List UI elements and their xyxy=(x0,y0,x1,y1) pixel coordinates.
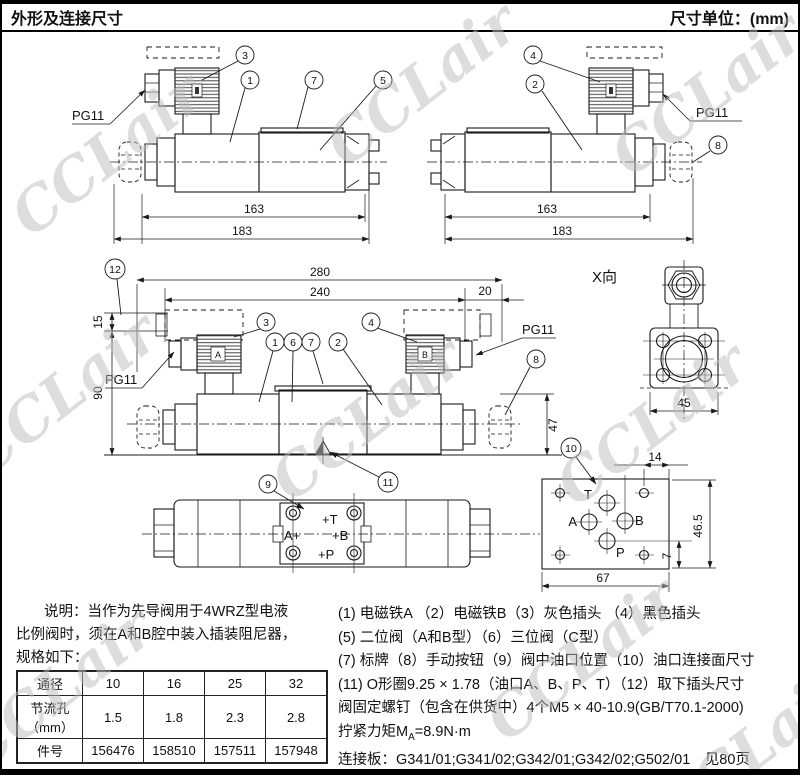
dim-45: 45 xyxy=(677,396,691,410)
legend-line: 连接板：G341/01;G341/02;G342/01;G342/02;G502… xyxy=(338,749,796,773)
table-cell: 16 xyxy=(144,671,205,696)
table-cell: 2.3 xyxy=(205,696,266,739)
pg11-label-top-left: PG11 xyxy=(72,108,104,123)
callout-4-mid: 4 xyxy=(368,317,374,329)
legend-line: (7) 标牌（8）手动按钮（9）阀中油口位置（10）油口连接面尺寸 xyxy=(338,650,796,674)
port-label-p-face: P xyxy=(616,545,625,560)
unit-label: 尺寸单位：(mm) xyxy=(670,5,789,29)
dim-240: 240 xyxy=(310,285,330,299)
dim-183-right: 183 xyxy=(552,224,572,238)
page-header: 外形及连接尺寸 尺寸单位：(mm) xyxy=(2,4,798,32)
pg11-label-mid-left: PG11 xyxy=(105,372,137,387)
drawing-assembly-view: A B xyxy=(91,259,562,464)
drawing-port-face: T A B P 14 46.5 7 67 10 xyxy=(542,438,716,592)
table-cell: 25 xyxy=(205,671,266,696)
dim-14: 14 xyxy=(648,450,662,464)
table-cell-sublabel: （mm） xyxy=(22,717,78,736)
callout-7-mid: 7 xyxy=(308,337,314,349)
port-label-p-bottom: +P xyxy=(318,547,334,562)
table-cell: 2.8 xyxy=(266,696,328,739)
note-line: 说明：当作为先导阀用于4WRZ型电液 xyxy=(16,601,326,624)
table-cell: 1.8 xyxy=(144,696,205,739)
legend-line: (1) 电磁铁A （2）电磁铁B（3）灰色插头 （4）黑色插头 xyxy=(338,603,796,627)
table-cell: 156476 xyxy=(83,739,144,764)
port-label-a-face: A xyxy=(568,514,577,529)
drawing-side-view-right: 163 183 PG11 4 2 8 xyxy=(427,46,742,244)
port-label-t-bottom: +T xyxy=(322,512,338,527)
callout-5: 5 xyxy=(380,75,386,87)
drawing-bottom-view: +T A+ +B +P 9 11 xyxy=(142,452,540,573)
legend-line: 阀固定螺钉（包含在供货中）4个M5 × 40-10.9(GB/T70.1-200… xyxy=(338,697,796,721)
callout-6: 6 xyxy=(290,337,296,349)
callout-10: 10 xyxy=(565,443,577,455)
legend-line: (11) O形圈9.25 × 1.78（油口A、B、P、T）（12）取下插头尺寸 xyxy=(338,674,796,698)
dim-163-left: 163 xyxy=(244,202,264,216)
callout-11: 11 xyxy=(383,477,394,489)
spec-table: 通径 10 16 25 32 节流孔 （mm） 1.5 1.8 2.3 2.8 … xyxy=(16,670,328,764)
callout-3-mid: 3 xyxy=(263,317,269,329)
torque-text: 拧紧力矩M xyxy=(338,724,408,740)
table-cell: 32 xyxy=(266,671,328,696)
callout-3: 3 xyxy=(242,50,248,62)
dim-7: 7 xyxy=(660,552,674,559)
table-cell: 10 xyxy=(83,671,144,696)
callout-9: 9 xyxy=(265,479,271,491)
table-cell: 157511 xyxy=(205,739,266,764)
callout-7: 7 xyxy=(311,75,317,87)
dim-46-5: 46.5 xyxy=(691,514,705,538)
callout-1: 1 xyxy=(247,75,253,87)
callout-4: 4 xyxy=(530,50,536,62)
port-label-a-bottom: A+ xyxy=(284,528,300,543)
table-header-cell: 通径 xyxy=(17,671,83,696)
table-cell: 157948 xyxy=(266,739,328,764)
dim-90: 90 xyxy=(91,386,105,400)
drawing-x-view: X向 45 xyxy=(592,260,728,422)
torque-value: =8.9N·m xyxy=(415,724,471,740)
dim-20: 20 xyxy=(478,284,492,298)
callout-8: 8 xyxy=(715,140,721,152)
legend-notes: (1) 电磁铁A （2）电磁铁B（3）灰色插头 （4）黑色插头 (5) 二位阀（… xyxy=(338,603,796,772)
catalog-page: 外形及连接尺寸 尺寸单位：(mm) xyxy=(0,0,800,775)
callout-2-mid: 2 xyxy=(335,337,341,349)
table-row: 件号 156476 158510 157511 157948 xyxy=(17,739,327,764)
dim-15: 15 xyxy=(91,315,105,329)
solenoid-a-mark: A xyxy=(215,350,221,360)
dim-47: 47 xyxy=(546,418,560,432)
legend-line-torque: 拧紧力矩MA=8.9N·m xyxy=(338,721,796,749)
table-cell: 158510 xyxy=(144,739,205,764)
legend-line: (5) 二位阀（A和B型）（6）三位阀（C型） xyxy=(338,627,796,651)
technical-drawing-canvas: 163 183 PG11 3 1 7 5 xyxy=(2,32,800,604)
port-label-b-face: B xyxy=(635,513,644,528)
dim-280: 280 xyxy=(310,265,330,279)
port-label-b-bottom: +B xyxy=(332,528,348,543)
table-header-cell: 节流孔 （mm） xyxy=(17,696,83,739)
torque-subscript: A xyxy=(408,731,415,742)
port-label-t-face: T xyxy=(584,487,592,502)
callout-1-mid: 1 xyxy=(272,337,278,349)
dim-67: 67 xyxy=(596,571,610,585)
table-row: 通径 10 16 25 32 xyxy=(17,671,327,696)
page-title: 外形及连接尺寸 xyxy=(11,5,123,29)
note-line: 规格如下： xyxy=(16,647,326,670)
dim-183-left: 183 xyxy=(232,224,252,238)
table-row: 节流孔 （mm） 1.5 1.8 2.3 2.8 xyxy=(17,696,327,739)
pg11-label-top-right: PG11 xyxy=(696,105,728,120)
notes-left: 说明：当作为先导阀用于4WRZ型电液 比例阀时，须在A和B腔中装入插装阻尼器， … xyxy=(16,601,326,671)
table-cell: 1.5 xyxy=(83,696,144,739)
note-line: 比例阀时，须在A和B腔中装入插装阻尼器， xyxy=(16,624,326,647)
x-view-label: X向 xyxy=(592,269,617,286)
callout-8-mid: 8 xyxy=(533,354,539,366)
drawing-side-view-left: 163 183 PG11 3 1 7 5 xyxy=(72,46,392,244)
solenoid-b-mark: B xyxy=(422,350,428,360)
table-header-cell: 件号 xyxy=(17,739,83,764)
dim-163-right: 163 xyxy=(537,202,557,216)
table-cell-label: 节流孔 xyxy=(22,698,78,717)
callout-2: 2 xyxy=(532,79,538,91)
callout-12: 12 xyxy=(109,264,121,276)
pg11-label-mid-right: PG11 xyxy=(522,322,554,337)
